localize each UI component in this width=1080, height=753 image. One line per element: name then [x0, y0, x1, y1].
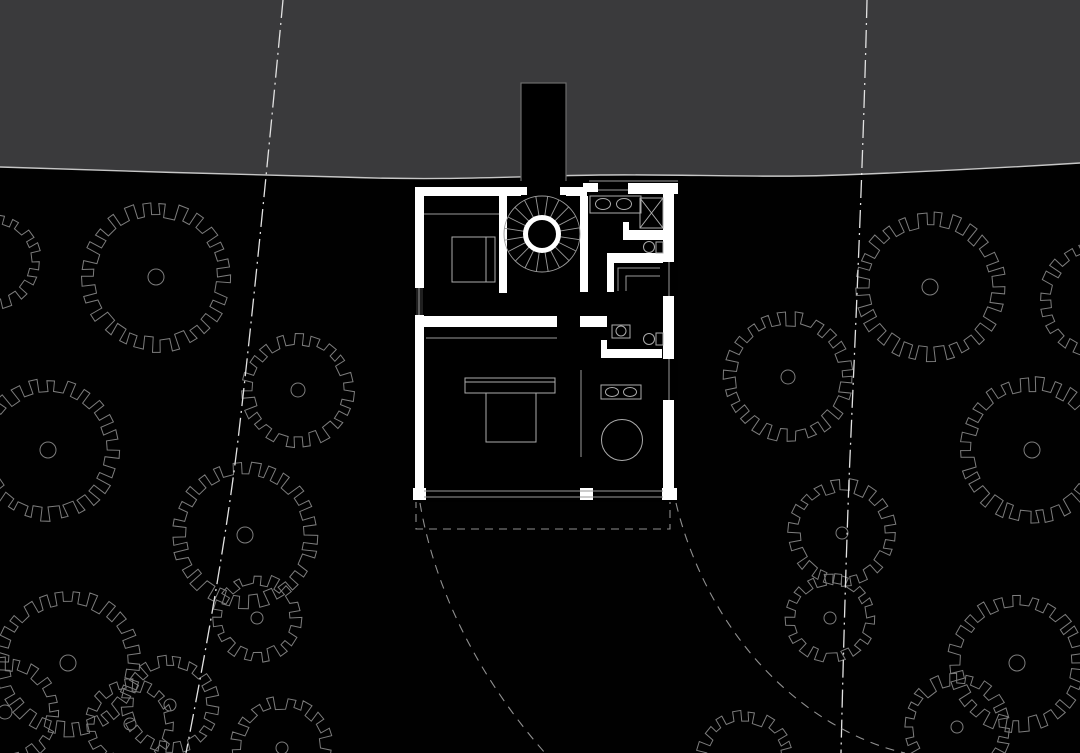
wall-bath-b-stub: [607, 253, 614, 292]
wall-bath-a: [623, 230, 663, 240]
post-bottom-right: [662, 488, 677, 500]
stair-core-ring: [526, 218, 559, 251]
wall-top-window-left: [583, 183, 598, 192]
site-plan-page: [0, 0, 1080, 753]
post-bottom-mid: [580, 488, 593, 500]
wall-right-lower: [663, 400, 674, 496]
wall-top-left: [415, 187, 521, 196]
post-bottom-left: [413, 488, 426, 500]
wall-stair-bath: [580, 196, 588, 292]
entry-bridge: [521, 83, 566, 187]
wall-band-left: [424, 316, 557, 327]
wall-right-upper: [663, 186, 674, 262]
entry-tab-left: [521, 187, 527, 195]
site-plan-svg: [0, 0, 1080, 753]
wall-band-right: [580, 316, 607, 327]
entry-tab-right: [560, 187, 566, 195]
wall-left-upper: [415, 187, 424, 288]
wall-bath-b: [607, 253, 663, 263]
wall-wc-bottom: [605, 349, 662, 358]
wall-right-mid: [663, 296, 674, 359]
wall-left-lower: [415, 315, 424, 496]
